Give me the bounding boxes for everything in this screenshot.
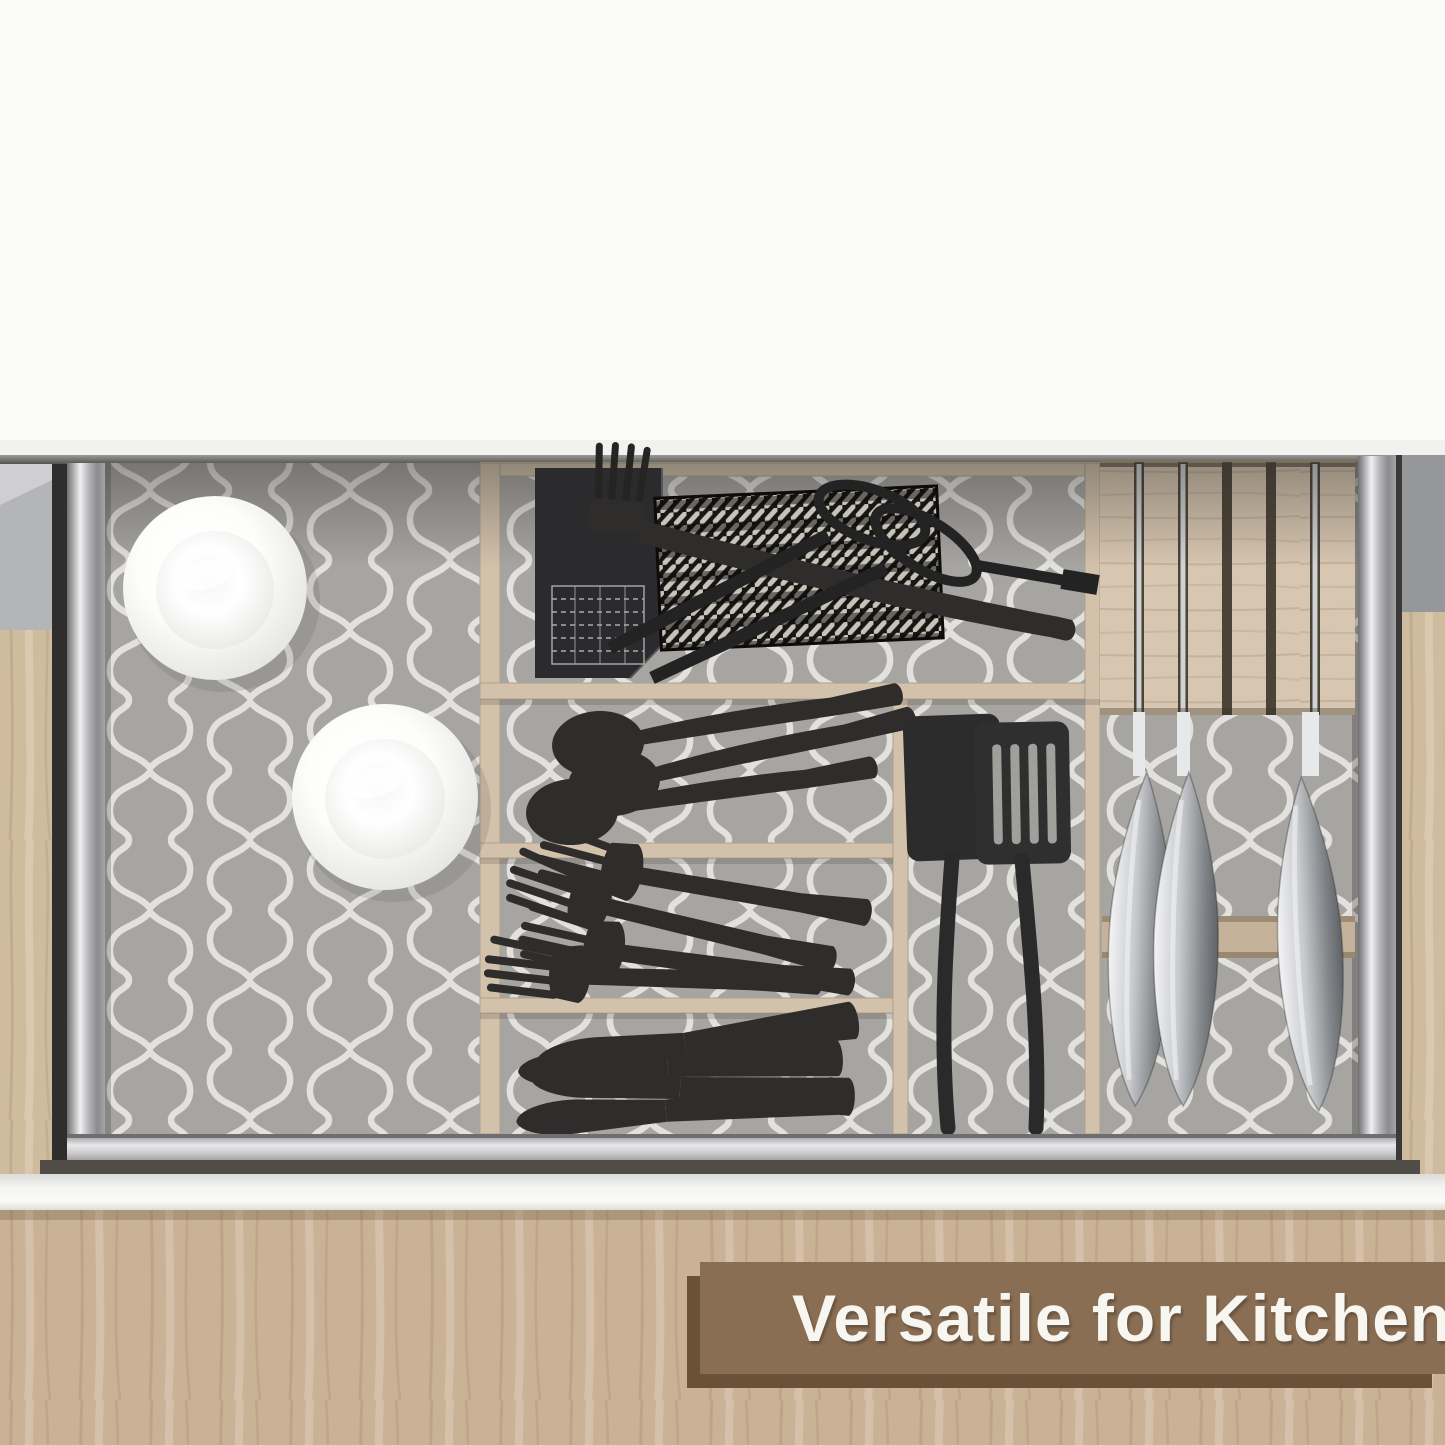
drawer-front-gap — [40, 1160, 1420, 1176]
cabinet-side-right — [1396, 455, 1445, 1178]
drawer-front-rail — [67, 1134, 1396, 1162]
drawer-scene — [0, 0, 1445, 1445]
cabinet-side-left — [0, 464, 67, 1178]
drawer-rail-left — [67, 463, 105, 1160]
organizer-divider-h1 — [480, 683, 1100, 699]
counter-ledge — [0, 1174, 1445, 1212]
drawer-rail-right — [1358, 456, 1396, 1164]
wall-top — [0, 0, 1445, 455]
caption-text: Versatile for Kitchen — [792, 1280, 1445, 1356]
caption-banner: Versatile for Kitchen — [700, 1262, 1445, 1374]
product-image: Versatile for Kitchen — [0, 0, 1445, 1445]
